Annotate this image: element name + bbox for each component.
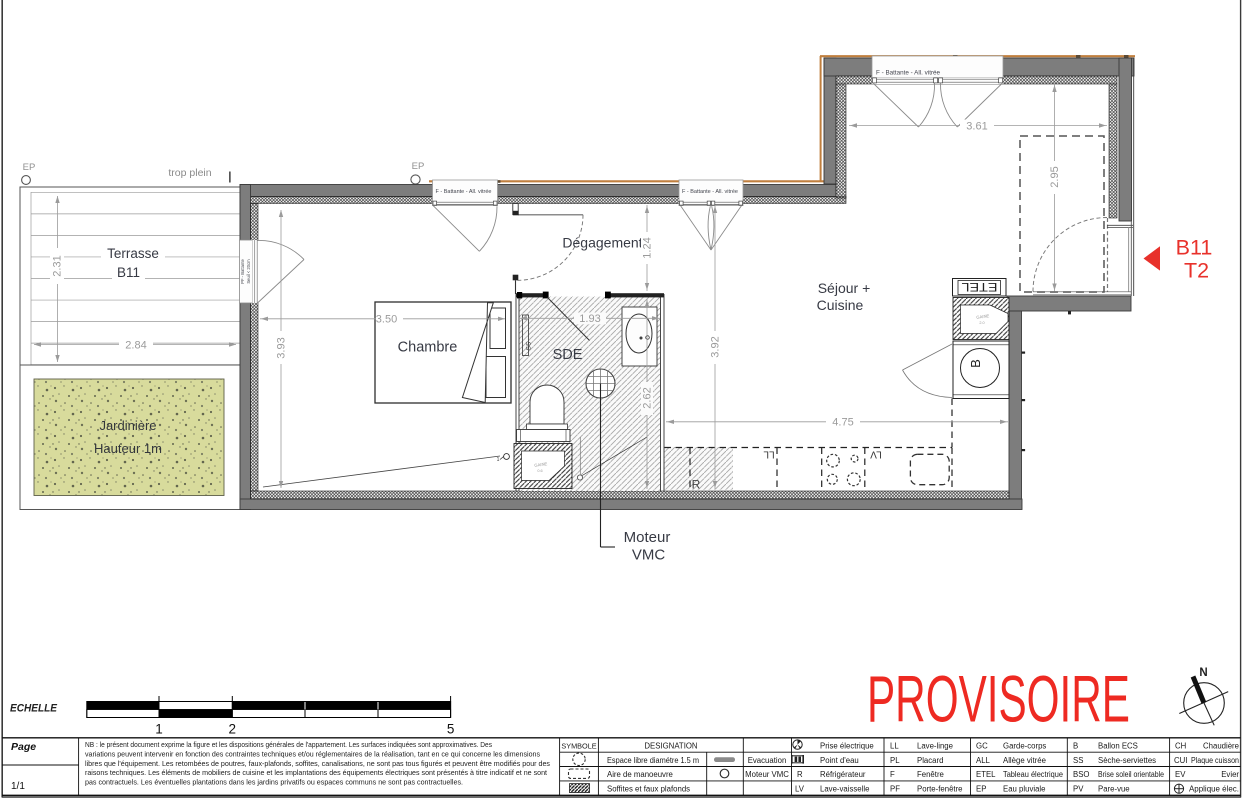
svg-text:2.95: 2.95	[1049, 166, 1061, 187]
svg-text:GC: GC	[976, 741, 988, 750]
svg-text:Pare-vue: Pare-vue	[1098, 785, 1130, 794]
svg-text:Chaudière: Chaudière	[1203, 741, 1239, 750]
svg-text:2.0: 2.0	[979, 321, 984, 325]
svg-text:Prise électrique: Prise électrique	[820, 741, 874, 750]
svg-text:F - Battante - All. vitrée: F - Battante - All. vitrée	[682, 189, 738, 195]
svg-text:Lave-linge: Lave-linge	[917, 741, 953, 750]
svg-text:5: 5	[447, 722, 455, 737]
svg-text:1: 1	[497, 457, 500, 463]
svg-text:3.61: 3.61	[966, 120, 987, 132]
svg-text:EP: EP	[976, 785, 986, 794]
svg-text:DESIGNATION: DESIGNATION	[644, 741, 697, 750]
svg-text:3.50: 3.50	[376, 314, 397, 326]
svg-text:LV: LV	[795, 785, 805, 794]
svg-text:Dégagement: Dégagement	[562, 235, 642, 251]
svg-text:Chambre: Chambre	[398, 340, 458, 356]
svg-text:EP: EP	[23, 162, 36, 173]
svg-text:ALL: ALL	[976, 756, 991, 765]
svg-text:PROVISOIRE: PROVISOIRE	[867, 662, 1130, 736]
svg-text:SS: SS	[526, 341, 533, 350]
svg-text:R: R	[692, 478, 701, 492]
svg-text:N: N	[1199, 667, 1207, 679]
svg-text:3.92: 3.92	[710, 336, 722, 357]
svg-text:Espace libre diamétre 1.5 m: Espace libre diamétre 1.5 m	[607, 756, 699, 765]
svg-text:Placard: Placard	[917, 756, 943, 765]
svg-text:0.6: 0.6	[537, 469, 542, 473]
svg-text:B11: B11	[117, 265, 140, 280]
svg-text:2.62: 2.62	[642, 387, 654, 408]
svg-text:raisons techniques. Les élémen: raisons techniques. Les éléments de mobi…	[85, 768, 548, 777]
svg-text:Terrasse: Terrasse	[107, 246, 159, 261]
svg-text:F - Battante - All. vitrée: F - Battante - All. vitrée	[436, 189, 492, 195]
svg-text:PF - Battante: PF - Battante	[240, 258, 245, 283]
svg-text:Applique élec.: Applique élec.	[1189, 785, 1239, 794]
svg-text:R: R	[797, 770, 803, 779]
svg-text:Tableau électrique: Tableau électrique	[1003, 770, 1063, 779]
svg-text:Plaque cuisson: Plaque cuisson	[1191, 756, 1239, 765]
svg-text:Allège vitrée: Allège vitrée	[1003, 756, 1046, 765]
svg-text:2.84: 2.84	[125, 339, 146, 351]
svg-text:libres que l'équipement. Les r: libres que l'équipement. Les retombées d…	[85, 759, 550, 768]
svg-text:NB : le présent document expri: NB : le présent document exprime la figu…	[85, 740, 492, 749]
svg-text:2: 2	[229, 722, 237, 737]
svg-text:EV: EV	[1175, 770, 1186, 779]
svg-text:Page: Page	[11, 741, 36, 753]
svg-text:Séjour +: Séjour +	[818, 280, 871, 296]
svg-text:SYMBOLE: SYMBOLE	[561, 741, 596, 750]
svg-text:1.93: 1.93	[579, 313, 600, 325]
svg-text:Sèche-serviettes: Sèche-serviettes	[1098, 756, 1156, 765]
svg-text:Aire de manoeuvre: Aire de manoeuvre	[607, 770, 673, 779]
svg-text:SDE: SDE	[553, 347, 583, 363]
svg-text:Réfrigérateur: Réfrigérateur	[820, 770, 866, 779]
svg-text:Jardinière: Jardinière	[99, 418, 156, 433]
svg-text:B11: B11	[1176, 236, 1213, 260]
svg-text:ETEL: ETEL	[976, 770, 996, 779]
svg-text:Garde-corps: Garde-corps	[1003, 741, 1046, 750]
svg-text:3.93: 3.93	[276, 337, 288, 358]
svg-text:EP: EP	[412, 161, 425, 172]
svg-text:LV: LV	[870, 448, 882, 459]
svg-text:Ballon ECS: Ballon ECS	[1098, 741, 1138, 750]
svg-text:Eau pluviale: Eau pluviale	[1003, 785, 1045, 794]
svg-text:variations peuvent intervenir: variations peuvent intervenir en fonctio…	[85, 750, 540, 759]
svg-text:BSO: BSO	[1073, 770, 1089, 779]
svg-text:Evacuation: Evacuation	[748, 756, 787, 765]
svg-text:Cuisine: Cuisine	[817, 297, 864, 313]
svg-text:Brise soleil orientable: Brise soleil orientable	[1098, 770, 1164, 779]
svg-text:Point d'eau: Point d'eau	[820, 756, 859, 765]
svg-text:CUI: CUI	[1174, 756, 1187, 765]
svg-text:Seuil < 20cm: Seuil < 20cm	[246, 259, 251, 284]
svg-text:Moteur VMC: Moteur VMC	[745, 770, 789, 779]
svg-text:Hauteur 1m: Hauteur 1m	[94, 441, 162, 456]
svg-text:1: 1	[155, 722, 163, 737]
svg-text:pas contractuels. Les éventuel: pas contractuels. Les éventuelles planta…	[85, 777, 463, 786]
svg-text:B: B	[968, 359, 983, 368]
svg-text:F - Battante - All. vitrée: F - Battante - All. vitrée	[876, 69, 941, 76]
svg-text:T2: T2	[1184, 259, 1209, 283]
svg-text:SS: SS	[1073, 756, 1083, 765]
svg-text:PV: PV	[1073, 785, 1084, 794]
svg-text:CH: CH	[1175, 741, 1186, 750]
svg-text:PF: PF	[890, 785, 900, 794]
svg-text:LL: LL	[763, 448, 775, 459]
svg-text:Moteur: Moteur	[624, 529, 671, 546]
svg-text:Evier: Evier	[1221, 770, 1239, 779]
svg-text:B: B	[1073, 741, 1078, 750]
svg-text:F: F	[890, 770, 895, 779]
svg-text:1/1: 1/1	[11, 781, 25, 792]
svg-text:ECHELLE: ECHELLE	[10, 703, 58, 715]
svg-text:PL: PL	[890, 756, 900, 765]
svg-text:Fenêtre: Fenêtre	[917, 770, 944, 779]
svg-text:trop plein: trop plein	[168, 167, 211, 179]
svg-text:Lave-vaisselle: Lave-vaisselle	[820, 785, 869, 794]
svg-text:Soffites et faux plafonds: Soffites et faux plafonds	[607, 785, 690, 794]
svg-text:2.31: 2.31	[52, 255, 64, 276]
svg-text:4.75: 4.75	[832, 417, 853, 429]
svg-text:VMC: VMC	[632, 547, 666, 564]
svg-text:Porte-fenêtre: Porte-fenêtre	[917, 785, 963, 794]
svg-text:LL: LL	[890, 741, 899, 750]
svg-text:1.24: 1.24	[642, 237, 654, 258]
svg-text:ETEL: ETEL	[961, 280, 997, 294]
